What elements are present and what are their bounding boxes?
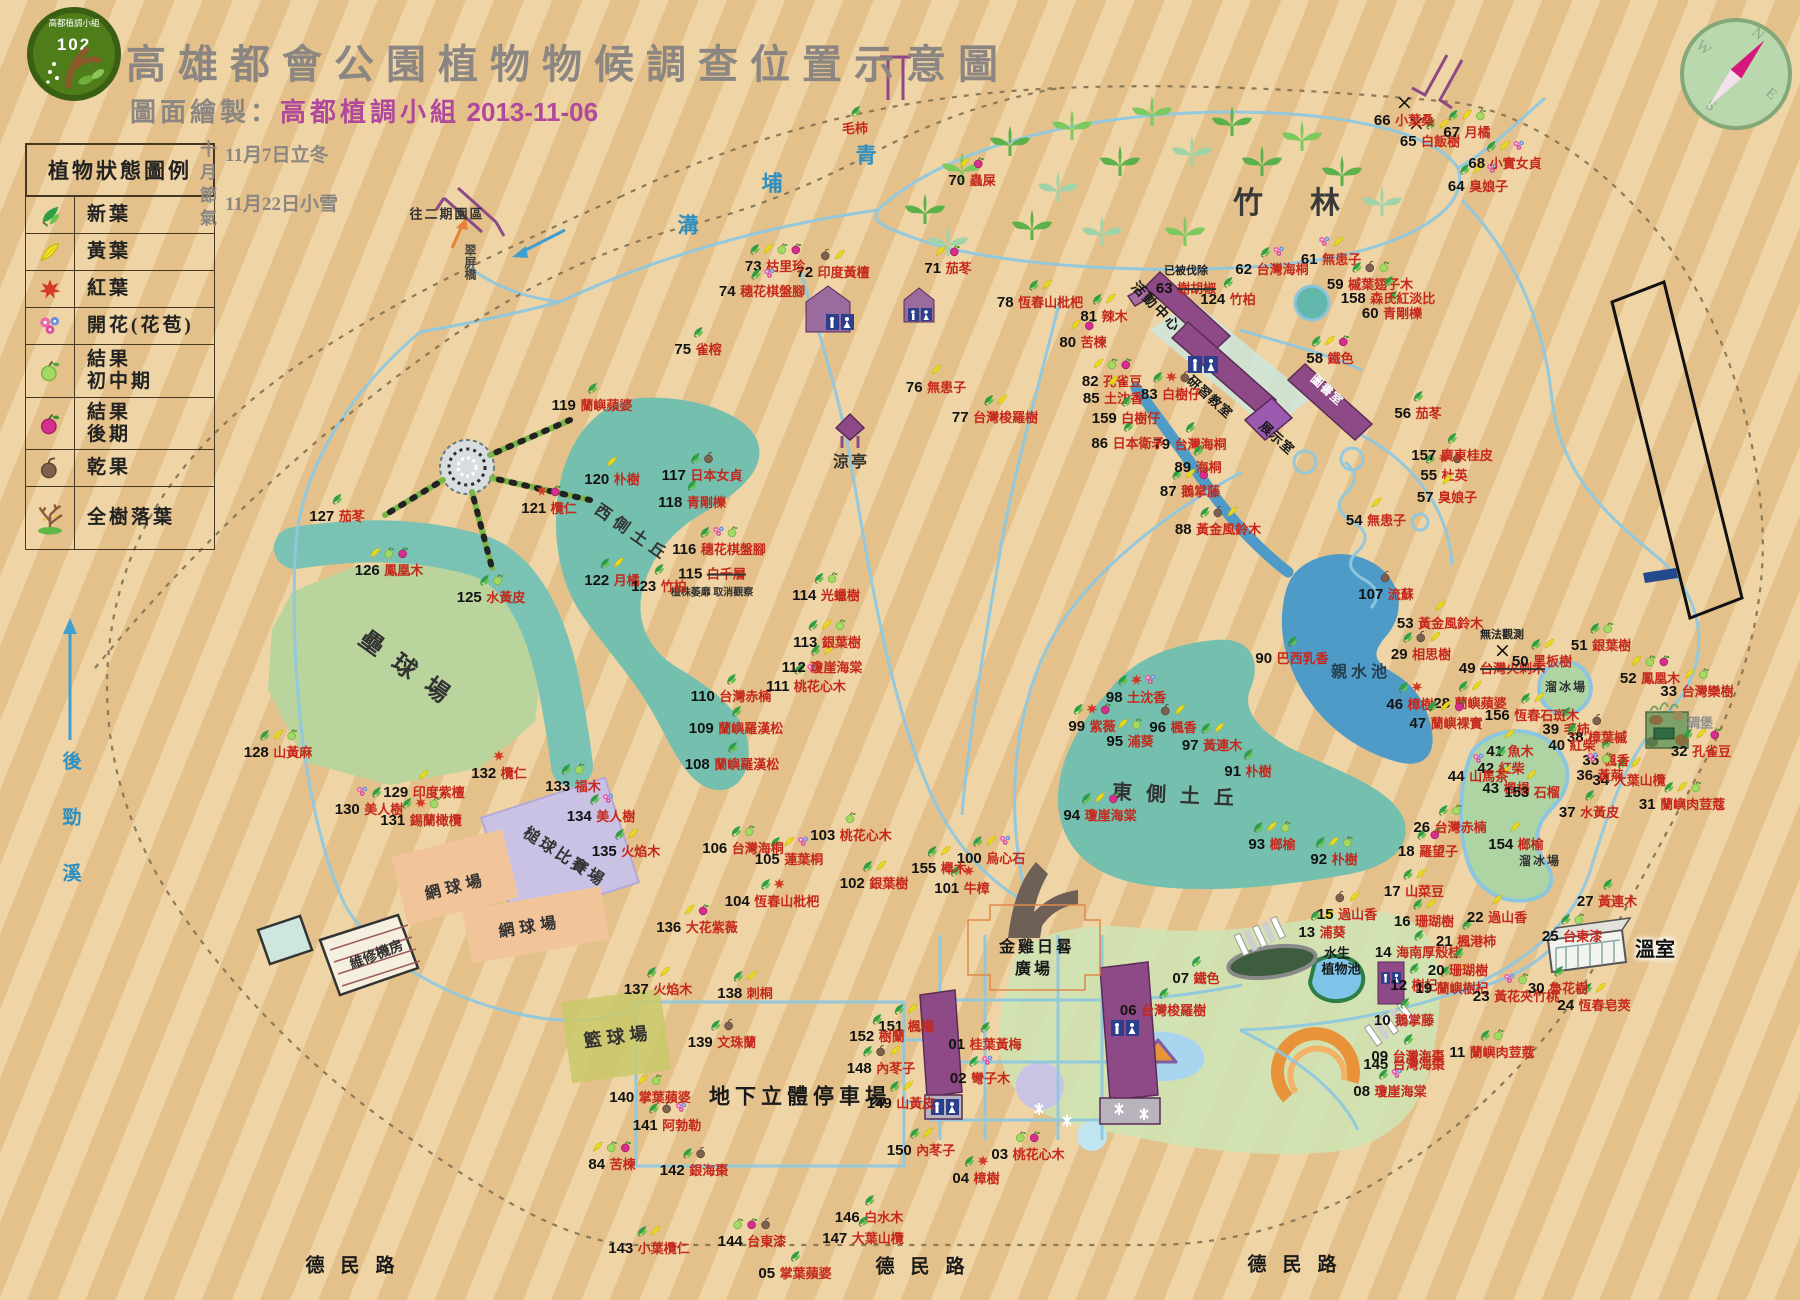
plant-name: 樟樹 <box>974 1171 1000 1186</box>
phenology-icons <box>662 449 743 464</box>
plant-number: 30 <box>1528 980 1545 997</box>
phenology-icons <box>1394 387 1441 402</box>
plant-number: 148 <box>847 1060 872 1077</box>
plant-marker-159: 159 白樹仔 <box>1092 392 1161 428</box>
plant-number: 64 <box>1448 178 1465 195</box>
phenology-icons <box>1092 392 1161 407</box>
phenology-icons <box>1248 818 1295 833</box>
plant-number: 57 <box>1417 489 1434 506</box>
legend-row: 全樹落葉 <box>25 487 215 550</box>
plant-marker-10: 10 鵝掌藤 <box>1374 994 1434 1030</box>
legend-header: 植物狀態圖例 <box>25 143 215 197</box>
plant-number: 68 <box>1468 155 1485 172</box>
phenology-icons <box>1577 875 1637 890</box>
plant-number: 51 <box>1571 637 1588 654</box>
plant-number: 47 <box>1409 715 1426 732</box>
plant-name: 羅望子 <box>1419 844 1458 859</box>
plant-name: 紫薇 <box>1090 719 1116 734</box>
plant-name: 鳳凰木 <box>384 563 423 578</box>
compass-w: W <box>1692 37 1714 59</box>
plant-marker-88: 88 黃金風鈴木 <box>1175 503 1261 539</box>
plant-name: 火焰木 <box>653 982 692 997</box>
legend-row: 紅葉 <box>25 271 215 308</box>
plant-number: 21 <box>1436 933 1453 950</box>
plant-marker-127: 127 茄苳 <box>309 490 365 526</box>
plant-number: 144 <box>718 1233 743 1250</box>
phenology-icons <box>719 265 805 280</box>
plant-marker-17: 17 山菜豆 <box>1384 865 1444 901</box>
plant-marker-68: 68 小實女貞 <box>1468 137 1541 173</box>
phenology-icons <box>1528 962 1588 977</box>
plant-number: 108 <box>685 756 710 773</box>
plant-marker-02: 02 彎子木 <box>950 1052 1010 1088</box>
plant-number: 102 <box>840 875 865 892</box>
plant-number: 36 <box>1576 767 1593 784</box>
plant-number: 67 <box>1443 124 1460 141</box>
plant-number: 96 <box>1149 719 1166 736</box>
phenology-icons <box>631 560 687 575</box>
phenology-icons <box>1175 503 1261 518</box>
plant-number: 29 <box>1391 646 1408 663</box>
phenology-icons <box>887 1124 956 1139</box>
plant-number: 20 <box>1428 962 1445 979</box>
plant-number: 92 <box>1310 851 1327 868</box>
plant-marker-94: 94 瓊崖海棠 <box>1063 789 1136 825</box>
phenology-icons <box>906 361 966 376</box>
r-legend-icon <box>26 271 75 307</box>
plant-name: 朴樹 <box>1332 852 1358 867</box>
plant-name: 銀葉樹 <box>1592 638 1631 653</box>
phenology-icons <box>567 790 636 805</box>
plant-name: 鵝掌藤 <box>1181 484 1220 499</box>
phenology-icons <box>383 766 465 781</box>
plant-name: 白樹仔 <box>1121 411 1160 426</box>
plant-number: 157 <box>1411 447 1436 464</box>
plant-marker-56: 56 茄苳 <box>1394 387 1441 423</box>
plant-marker-128: 128 山黃麻 <box>244 726 313 762</box>
plant-number: 152 <box>849 1028 874 1045</box>
plant-number: 84 <box>588 1156 605 1173</box>
season-note: 十月節氣 11月7日立冬 11月22日小雪 <box>194 140 338 238</box>
plant-number: 04 <box>952 1170 969 1187</box>
plant-marker-06: 06 台灣梭羅樹 <box>1120 984 1206 1020</box>
phenology-icons <box>1386 678 1433 693</box>
credit-team: 高都植調小組 <box>280 98 460 127</box>
phenology-icons <box>660 1144 729 1159</box>
plant-marker-106: 106 台灣海桐 <box>702 822 784 858</box>
plant-name: 榔榆 <box>1518 837 1544 852</box>
plant-name: 石榴 <box>1534 785 1560 800</box>
plant-marker-158: 158 森氏紅淡比 <box>1341 272 1436 308</box>
plant-number: 77 <box>952 409 969 426</box>
phenology-icons <box>725 875 820 890</box>
map-stage: 高都植調小組 102 高雄都會公園植物物候調查位置示意圖 圖面繪製：高都植調小組… <box>0 0 1800 1300</box>
phenology-icons <box>1310 833 1357 848</box>
plant-number: 46 <box>1386 696 1403 713</box>
plant-number: 124 <box>1200 291 1225 308</box>
phenology-icons <box>521 482 577 497</box>
plant-number: 109 <box>689 720 714 737</box>
plant-marker-89: 89 海桐 <box>1174 441 1221 477</box>
phenology-icons <box>948 1018 1021 1033</box>
plant-number: 140 <box>609 1089 634 1106</box>
plant-number: 23 <box>1473 988 1490 1005</box>
plant-number: 120 <box>584 471 609 488</box>
plant-name: 刺桐 <box>747 986 773 1001</box>
logo: 高都植調小組 102 <box>24 4 124 109</box>
phenology-icons <box>842 102 868 117</box>
plant-marker-104: 104 恆春山枇杷 <box>725 875 820 911</box>
plant-marker-156: 156 恆春石斑木 <box>1485 689 1580 725</box>
phenology-icons <box>950 1052 1010 1067</box>
plant-marker-05: 05 掌葉蘋婆 <box>758 1247 831 1283</box>
plant-marker-145: 145 台灣海棗 <box>1363 1054 1445 1074</box>
plant-marker-141: 141 阿勃勒 <box>633 1099 702 1135</box>
plant-name: 恆春山枇杷 <box>1018 295 1083 310</box>
phenology-icons <box>1449 1026 1534 1041</box>
plant-number: 52 <box>1620 670 1637 687</box>
phenology-icons <box>1468 137 1541 152</box>
phenology-icons <box>1559 786 1619 801</box>
plant-marker-136: 136 大花紫薇 <box>656 901 738 937</box>
plant-marker-37: 37 水黃皮 <box>1559 786 1619 822</box>
phenology-icons <box>911 842 967 857</box>
plant-marker-157: 157 廣東桂皮 <box>1411 429 1493 465</box>
plant-name: 瓊崖海棠 <box>1085 808 1137 823</box>
plant-name: 台灣欒樹 <box>1682 684 1734 699</box>
plant-number: 159 <box>1092 410 1117 427</box>
plant-marker-131: 131 錫蘭橄欖 <box>380 794 462 830</box>
phenology-icons <box>952 1152 999 1167</box>
plant-name: 火焰木 <box>621 844 660 859</box>
plant-marker-138: 138 刺桐 <box>717 967 773 1003</box>
plant-number: 130 <box>335 801 360 818</box>
phenology-icons <box>685 738 780 753</box>
plant-number: 118 <box>658 494 682 511</box>
plant-number: 112 <box>782 659 806 676</box>
plant-marker-92: 92 朴樹 <box>1310 833 1357 869</box>
phenology-icons <box>1374 94 1434 109</box>
plant-number: 70 <box>948 172 965 189</box>
plant-number: 11 <box>1449 1044 1465 1061</box>
plant-name: 美人樹 <box>596 809 635 824</box>
phenology-icons <box>991 1128 1064 1143</box>
plant-name: 無患子 <box>1322 252 1361 267</box>
u-legend-icon <box>26 345 75 397</box>
plant-marker-58: 58 鐵色 <box>1306 332 1353 368</box>
plant-marker-153: 153 石榴 <box>1504 766 1560 802</box>
plant-name: 廣東桂皮 <box>1441 448 1493 463</box>
legend-label: 全樹落葉 <box>75 487 214 549</box>
plant-marker-01: 01 桂葉黃梅 <box>948 1018 1021 1054</box>
plant-marker-84: 84 苦楝 <box>588 1138 635 1174</box>
phenology-icons <box>810 809 892 824</box>
plant-name: 鵝掌藤 <box>1395 1013 1434 1028</box>
plant-number: 53 <box>1397 615 1414 632</box>
plant-name: 日本衛矛 <box>1113 436 1165 451</box>
plant-name: 黃金風鈴木 <box>1418 616 1483 631</box>
plant-name: 小葉桑 <box>1395 113 1434 128</box>
phenology-icons <box>1341 272 1436 287</box>
plant-name: 茄苳 <box>946 261 972 276</box>
plant-marker-93: 93 榔榆 <box>1248 818 1295 854</box>
phenology-icons <box>1301 233 1361 248</box>
plant-number: 14 <box>1375 944 1392 961</box>
compass-e: E <box>1762 85 1780 104</box>
phenology-icons <box>948 154 995 169</box>
phenology-icons <box>1106 671 1166 686</box>
plant-marker-126: 126 鳳凰木 <box>355 544 424 580</box>
plant-marker-03: 03 桃花心木 <box>991 1128 1064 1164</box>
plant-number: 81 <box>1080 308 1097 325</box>
phenology-icons <box>691 670 772 685</box>
phenology-icons <box>584 453 640 468</box>
phenology-icons <box>997 276 1083 291</box>
plant-name: 雀榕 <box>696 342 722 357</box>
phenology-icons <box>924 242 971 257</box>
plant-name: 辣木 <box>1102 309 1128 324</box>
plant-number: 143 <box>608 1240 633 1257</box>
plant-name: 白樹仔 <box>1162 387 1201 402</box>
plant-number: 74 <box>719 283 736 300</box>
plant-marker-135: 135 火焰木 <box>592 825 661 861</box>
plant-name: 過山香 <box>1338 907 1377 922</box>
plant-marker-137: 137 火焰木 <box>624 963 693 999</box>
plant-marker-107: 107 流蘇 <box>1358 568 1414 604</box>
plant-name: 樹蘭 <box>879 1029 905 1044</box>
phenology-icons <box>1409 697 1482 712</box>
plant-name: 台灣赤楠 <box>1435 820 1487 835</box>
legend-label: 開花(花苞) <box>75 308 214 344</box>
plant-number: 91 <box>1224 763 1241 780</box>
plant-number: 50 <box>1512 653 1529 670</box>
plant-name: 光蠟樹 <box>821 588 860 603</box>
d-legend-icon <box>26 450 75 486</box>
phenology-icons <box>309 490 365 505</box>
plant-number: 93 <box>1248 836 1265 853</box>
phenology-icons <box>1486 725 1533 740</box>
plant-name: 魯花樹 <box>1549 981 1588 996</box>
plant-number: 158 <box>1341 290 1366 307</box>
phenology-icons <box>380 794 462 809</box>
plant-number: 107 <box>1358 586 1383 603</box>
plant-name: 瓊崖海棠 <box>1375 1084 1427 1099</box>
plant-number: 137 <box>624 981 649 998</box>
plant-number: 136 <box>656 919 681 936</box>
plant-name: 黃荊 <box>1598 768 1624 783</box>
plant-marker-155: 155 櫸木 <box>911 842 967 878</box>
plant-number: 99 <box>1068 718 1085 735</box>
plant-name: 朴樹 <box>614 472 640 487</box>
plant-marker: 毛柿 <box>842 102 868 138</box>
phenology-icons <box>1358 568 1414 583</box>
plant-number: 24 <box>1557 997 1574 1014</box>
phenology-icons <box>1255 632 1328 647</box>
plant-marker-47: 47 蘭嶼裸實 <box>1409 697 1482 733</box>
plant-marker-110: 110 台灣赤楠 <box>691 670 772 706</box>
plant-name: 大花紫薇 <box>686 920 738 935</box>
plant-name: 桃花心木 <box>840 828 892 843</box>
plant-name: 台東漆 <box>747 1234 786 1249</box>
plant-marker-97: 97 黃連木 <box>1182 719 1242 755</box>
plant-name: 穗花棋盤腳 <box>740 284 805 299</box>
plant-name: 黃金風鈴木 <box>1196 522 1261 537</box>
plant-number: 119 <box>552 397 576 414</box>
plant-name: 鐵色 <box>1328 351 1354 366</box>
plant-marker-144: 144 台東漆 <box>718 1215 787 1251</box>
plant-name: 恆春皂莢 <box>1579 998 1631 1013</box>
plant-marker-154: 154 榔榆 <box>1488 818 1544 854</box>
plant-number: 128 <box>244 744 269 761</box>
legend-row: 結果後期 <box>25 398 215 451</box>
plant-name: 彎子木 <box>971 1071 1010 1086</box>
plant-name: 台灣赤楠 <box>719 689 771 704</box>
plant-marker-114: 114 光蠟樹 <box>792 569 860 605</box>
plant-marker-132: 132 欖仁 <box>471 747 527 783</box>
plant-marker-25: 25 台東漆 <box>1542 910 1602 946</box>
phenology-icons <box>608 1222 690 1237</box>
plant-name: 蘭嶼蘋婆 <box>580 398 632 413</box>
phenology-icons <box>1063 789 1136 804</box>
phenology-icons <box>1306 332 1353 347</box>
plant-name: 巴西乳香 <box>1277 651 1329 666</box>
phenology-icons <box>835 1191 904 1206</box>
phenology-icons <box>592 825 661 840</box>
phenology-icons <box>1200 273 1256 288</box>
phenology-icons <box>1671 725 1731 740</box>
plant-number: 154 <box>1488 836 1513 853</box>
phenology-icons <box>1317 888 1377 903</box>
plant-number: 114 <box>792 587 816 604</box>
plant-number: 26 <box>1413 819 1430 836</box>
plant-name: 竹柏 <box>661 579 687 594</box>
phenology-icons <box>1488 818 1544 833</box>
legend-row: 結果初中期 <box>25 345 215 398</box>
plant-number: 155 <box>911 860 936 877</box>
phenology-icons <box>718 1215 787 1230</box>
phenology-icons <box>745 240 805 255</box>
plant-number: 122 <box>584 572 609 589</box>
plant-number: 97 <box>1182 737 1199 754</box>
plant-name: 黃連木 <box>1203 738 1242 753</box>
plant-marker-150: 150 內苳子 <box>887 1124 956 1160</box>
plant-marker-90: 90 巴西乳香 <box>1255 632 1328 668</box>
plant-name: 穗花棋盤腳 <box>701 542 766 557</box>
plant-number: 66 <box>1374 112 1391 129</box>
plant-marker-44: 44 山馬茶 <box>1448 750 1508 786</box>
plant-marker-124: 124 竹柏 <box>1200 273 1256 309</box>
plant-name: 小葉欖仁 <box>638 1241 690 1256</box>
plant-number: 27 <box>1577 893 1594 910</box>
plant-number: 76 <box>906 379 923 396</box>
phenology-icons <box>1080 290 1127 305</box>
plant-number: 25 <box>1542 928 1559 945</box>
plant-marker-134: 134 美人樹 <box>567 790 636 826</box>
plant-name: 無患子 <box>1367 513 1406 528</box>
plant-number: 156 <box>1485 707 1510 724</box>
plant-name: 臭娘子 <box>1469 179 1508 194</box>
plant-name: 櫸木 <box>941 861 967 876</box>
plant-number: 12 <box>1390 977 1407 994</box>
plant-number: 89 <box>1174 459 1191 476</box>
plant-name: 文珠蘭 <box>717 1035 756 1050</box>
plant-name: 銀葉樹 <box>822 635 861 650</box>
season-column: 十月節氣 <box>194 140 219 238</box>
plant-number: 22 <box>1467 909 1484 926</box>
credit-prefix: 圖面繪製： <box>130 98 280 127</box>
plant-number: 94 <box>1063 807 1080 824</box>
plant-number: 111 <box>766 678 789 695</box>
plant-number: 10 <box>1374 1012 1391 1029</box>
phenology-icons <box>633 1099 702 1114</box>
plant-number: 127 <box>309 508 334 525</box>
plant-number: 113 <box>793 634 817 651</box>
plant-name: 苦楝 <box>1081 335 1107 350</box>
plant-number: 08 <box>1353 1083 1370 1100</box>
plant-name: 小實女貞 <box>1490 156 1542 171</box>
plant-number: 132 <box>471 765 496 782</box>
phenology-icons <box>1384 865 1444 880</box>
page-title: 高雄都會公園植物物候調查位置示意圖 <box>126 32 1010 90</box>
plant-name: 台灣海桐 <box>732 841 784 856</box>
plant-name: 苦楝 <box>610 1157 636 1172</box>
plant-name: 阿勃勒 <box>662 1118 701 1133</box>
plant-name: 牛樟 <box>964 881 990 896</box>
phenology-icons <box>457 571 526 586</box>
plant-name: 蟲屎 <box>970 173 996 188</box>
plant-marker-04: 04 樟樹 <box>952 1152 999 1188</box>
plant-name: 茄苳 <box>1416 406 1442 421</box>
plant-marker-29: 29 相思樹 <box>1391 628 1451 664</box>
plant-number: 153 <box>1504 784 1529 801</box>
plant-marker-152: 152 樹蘭 <box>849 1010 905 1046</box>
plant-number: 116 <box>672 541 696 558</box>
phenology-icons <box>244 726 313 741</box>
plant-number: 01 <box>948 1036 965 1053</box>
plant-number: 44 <box>1448 768 1465 785</box>
legend-label: 結果後期 <box>75 398 214 450</box>
phenology-icons <box>471 747 527 762</box>
plant-number: 139 <box>688 1034 713 1051</box>
phenology-icons <box>624 963 693 978</box>
g-legend-icon <box>26 197 75 233</box>
legend-row: 新葉 <box>25 197 215 234</box>
phenology-icons <box>1174 441 1221 456</box>
plant-number: 86 <box>1091 435 1108 452</box>
plant-marker-11: 11 蘭嶼肉荳蔻 <box>1449 1026 1534 1062</box>
phenology-icons <box>1346 494 1406 509</box>
phenology-icons <box>1542 910 1602 925</box>
plant-number: 49 <box>1459 660 1476 677</box>
season-term-1: 11月7日立冬 <box>225 140 338 167</box>
phenology-icons <box>717 967 773 982</box>
plant-marker-149: 149 山黃皮 <box>867 1077 936 1113</box>
plant-name: 烏心石 <box>986 851 1025 866</box>
plant-marker-99: 99 紫薇 <box>1068 700 1115 736</box>
plant-name: 蘭嶼肉荳蔻 <box>1660 797 1725 812</box>
plant-name: 印度黃檀 <box>818 265 870 280</box>
phenology-icons <box>1485 689 1580 704</box>
legend-label: 黃葉 <box>75 234 214 270</box>
plant-marker-72: 72 印度黃檀 <box>796 246 869 282</box>
plant-marker-139: 139 文珠蘭 <box>688 1016 757 1052</box>
logo-team-text: 高都植調小組 <box>48 18 100 28</box>
plant-name: 內苳子 <box>876 1061 915 1076</box>
compass: N E S W <box>1680 18 1792 130</box>
plant-name: 海桐 <box>1196 460 1222 475</box>
plant-marker-108: 108 蘭嶼羅漢松 <box>685 738 780 774</box>
phenology-icons <box>1443 106 1490 121</box>
